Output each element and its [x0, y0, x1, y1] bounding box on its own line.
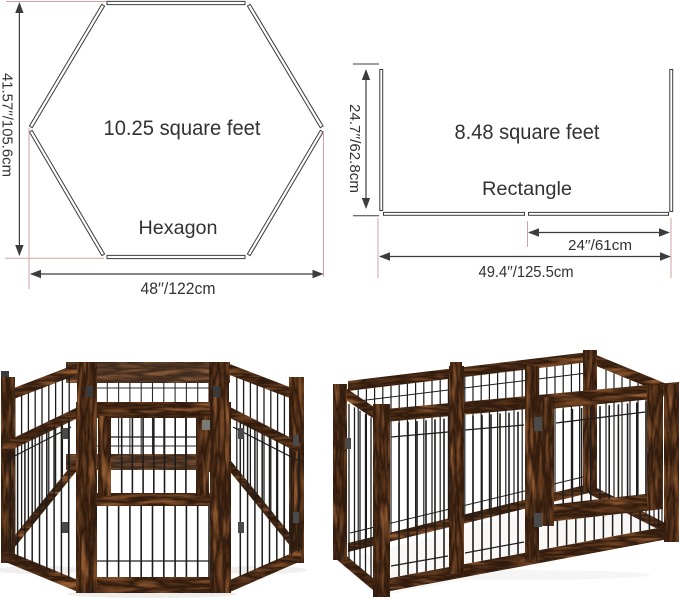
svg-text:10.25 square feet: 10.25 square feet — [104, 117, 261, 140]
svg-text:Hexagon: Hexagon — [139, 217, 218, 239]
svg-text:24.7′′/62.8cm: 24.7′′/62.8cm — [346, 104, 363, 193]
svg-text:8.48 square feet: 8.48 square feet — [455, 121, 600, 144]
svg-text:Rectangle: Rectangle — [482, 178, 572, 200]
svg-text:49.4′′/125.5cm: 49.4′′/125.5cm — [479, 264, 574, 281]
svg-text:24′′/61cm: 24′′/61cm — [568, 237, 632, 254]
svg-text:41.57′′/105.6cm: 41.57′′/105.6cm — [0, 73, 16, 177]
svg-text:48′′/122cm: 48′′/122cm — [141, 279, 216, 298]
